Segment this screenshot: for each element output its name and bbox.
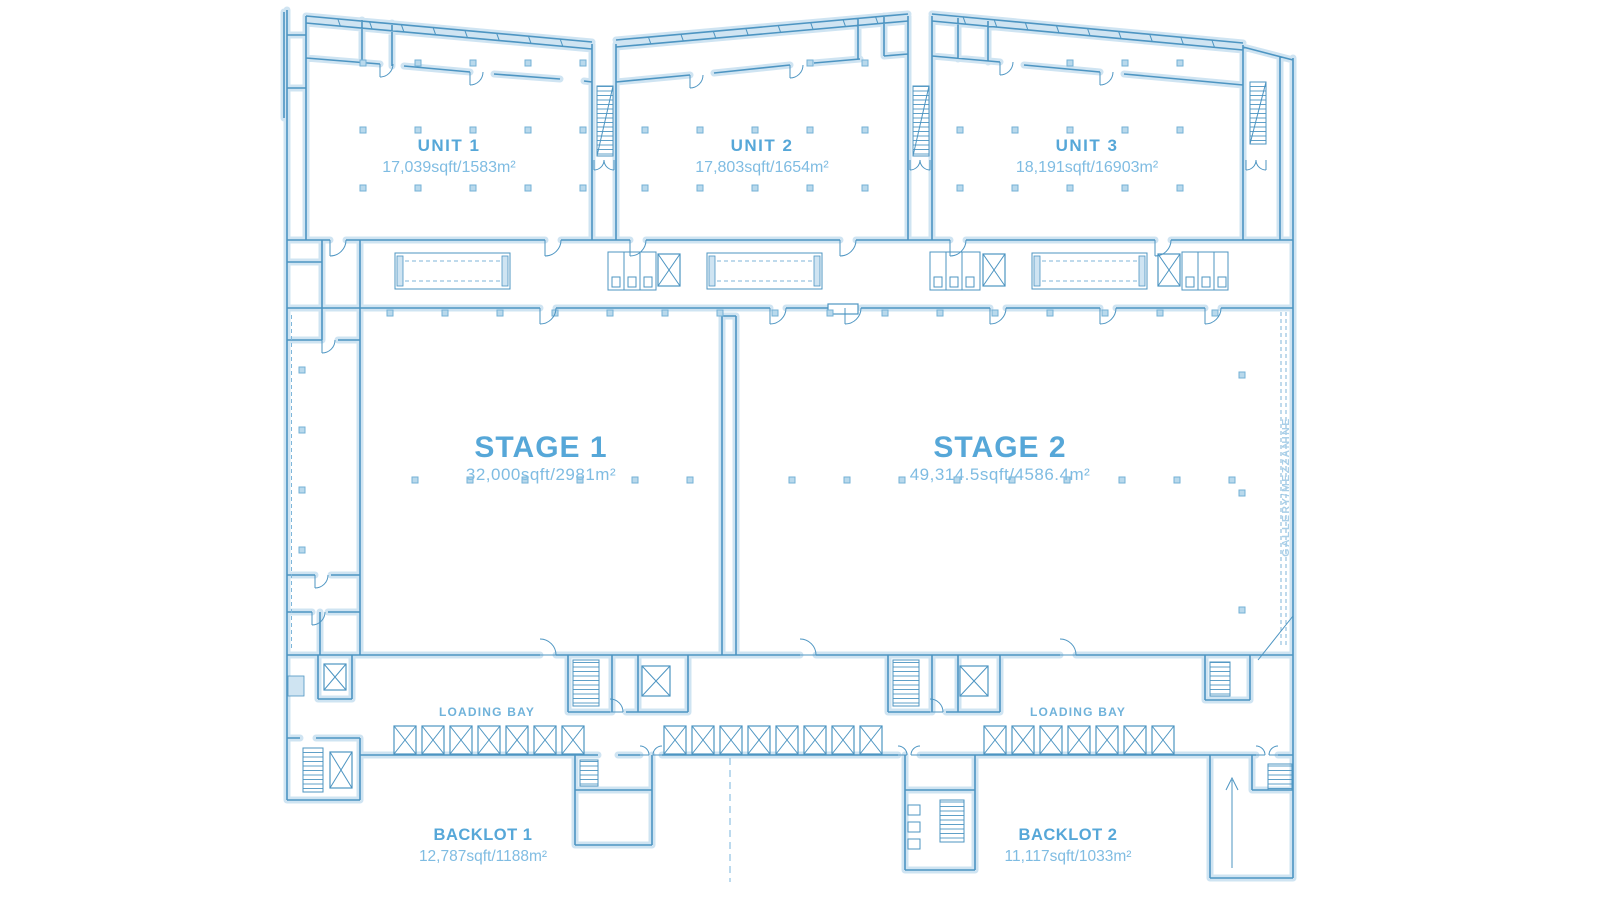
- wc-partition: [1198, 252, 1214, 290]
- column-marker: [360, 185, 366, 191]
- column-marker: [807, 185, 813, 191]
- plant-zone-cap: [1034, 256, 1040, 286]
- plant-zone-cap: [397, 256, 403, 286]
- wc-fixture: [1202, 277, 1210, 287]
- stage1-label: STAGE 1: [474, 431, 607, 464]
- column-marker: [1157, 310, 1163, 316]
- column-marker: [899, 477, 905, 483]
- column-marker: [662, 310, 668, 316]
- wc-cluster: [608, 252, 656, 290]
- backlot1-area: 12,787sqft/1188m²: [419, 848, 547, 865]
- loading-bay-left-label: LOADING BAY: [439, 705, 535, 719]
- column-marker: [862, 127, 868, 133]
- column-marker: [1119, 477, 1125, 483]
- column-marker: [1239, 490, 1245, 496]
- wc-fixture: [908, 822, 920, 832]
- static-details: [288, 304, 1293, 882]
- column-marker: [1177, 185, 1183, 191]
- stage2-label: STAGE 2: [933, 431, 1066, 464]
- column-marker: [632, 477, 638, 483]
- column-marker: [415, 60, 421, 66]
- wc-fixture: [1186, 277, 1194, 287]
- column-marker: [299, 427, 305, 433]
- column-marker: [862, 60, 868, 66]
- column-marker: [1012, 185, 1018, 191]
- wall-pier: [288, 676, 304, 696]
- wc-fixture: [628, 277, 636, 287]
- column-marker: [1122, 60, 1128, 66]
- column-marker: [387, 310, 393, 316]
- wc-partition: [946, 252, 962, 290]
- column-marker: [752, 127, 758, 133]
- column-marker: [807, 127, 813, 133]
- wc-fixture: [908, 805, 920, 815]
- column-marker: [827, 310, 833, 316]
- stage1-area: 32,000sqft/2981m²: [466, 465, 616, 484]
- gallery-mezzanine-label: GALLERY/MEZZANINE: [1280, 417, 1292, 556]
- column-marker: [1067, 60, 1073, 66]
- column-marker: [957, 127, 963, 133]
- column-marker: [580, 127, 586, 133]
- wc-fixture: [908, 839, 920, 849]
- backlot2-area: 11,117sqft/1033m²: [1005, 848, 1132, 865]
- column-marker: [360, 127, 366, 133]
- plant-zone-cap: [709, 256, 715, 286]
- floorplan-canvas: UNIT 1 17,039sqft/1583m² UNIT 2 17,803sq…: [0, 0, 1600, 900]
- wc-cluster: [930, 252, 980, 290]
- wc-fixture: [966, 277, 974, 287]
- wc-fixture: [1218, 277, 1226, 287]
- direction-arrow: [1226, 778, 1238, 868]
- column-marker: [1102, 310, 1108, 316]
- column-marker: [807, 60, 813, 66]
- column-marker: [772, 310, 778, 316]
- column-marker: [642, 185, 648, 191]
- column-marker: [1067, 185, 1073, 191]
- unit1-label: UNIT 1: [418, 136, 481, 155]
- unit1-area: 17,039sqft/1583m²: [382, 159, 516, 176]
- unit2-label: UNIT 2: [731, 136, 794, 155]
- stair: [1210, 662, 1230, 696]
- column-marker: [470, 185, 476, 191]
- column-marker: [580, 60, 586, 66]
- column-marker: [1174, 477, 1180, 483]
- column-marker: [525, 185, 531, 191]
- column-marker: [789, 477, 795, 483]
- column-marker: [1047, 310, 1053, 316]
- plant-zone: [707, 253, 822, 289]
- column-marker: [415, 185, 421, 191]
- column-marker: [1239, 372, 1245, 378]
- column-marker: [882, 310, 888, 316]
- column-marker: [607, 310, 613, 316]
- plant-zone-dashed: [1042, 261, 1137, 281]
- column-marker: [412, 477, 418, 483]
- wc-partition: [624, 252, 640, 290]
- column-marker: [1177, 127, 1183, 133]
- column-marker: [697, 185, 703, 191]
- stair: [303, 748, 323, 792]
- column-marker: [1012, 127, 1018, 133]
- plant-zone-cap: [502, 256, 508, 286]
- column-marker: [752, 185, 758, 191]
- column-marker: [1122, 127, 1128, 133]
- column-marker: [687, 477, 693, 483]
- column-marker: [992, 310, 998, 316]
- wc-fixture: [950, 277, 958, 287]
- column-marker: [642, 127, 648, 133]
- column-marker: [299, 367, 305, 373]
- wc-fixture: [644, 277, 652, 287]
- plant-zone-cap: [1139, 256, 1145, 286]
- column-marker: [937, 310, 943, 316]
- column-marker: [360, 60, 366, 66]
- column-marker: [497, 310, 503, 316]
- column-marker: [1177, 60, 1183, 66]
- column-marker: [1122, 185, 1128, 191]
- column-marker: [1239, 607, 1245, 613]
- loading-bay-right-label: LOADING BAY: [1030, 705, 1126, 719]
- stair: [940, 800, 964, 842]
- stair: [893, 660, 919, 706]
- column-marker: [415, 127, 421, 133]
- wc-fixture: [934, 277, 942, 287]
- plant-zone-dashed: [405, 261, 500, 281]
- plant-zone: [395, 253, 510, 289]
- column-marker: [1229, 477, 1235, 483]
- backlot1-label: BACKLOT 1: [434, 826, 533, 844]
- column-marker: [525, 60, 531, 66]
- column-marker: [844, 477, 850, 483]
- plant-zone: [1032, 253, 1147, 289]
- column-marker: [1212, 310, 1218, 316]
- column-marker: [470, 60, 476, 66]
- column-marker: [580, 185, 586, 191]
- column-marker: [862, 185, 868, 191]
- stair: [573, 660, 599, 706]
- column-marker: [442, 310, 448, 316]
- column-marker: [299, 487, 305, 493]
- column-marker: [525, 127, 531, 133]
- column-marker: [957, 185, 963, 191]
- column-marker: [470, 127, 476, 133]
- unit3-area: 18,191sqft/16903m²: [1016, 159, 1159, 176]
- wc-cluster: [1182, 252, 1228, 290]
- stair: [1268, 764, 1292, 790]
- stage2-area: 49,314.5sqft/4586.4m²: [910, 465, 1091, 484]
- wc-fixture: [612, 277, 620, 287]
- column-marker: [299, 547, 305, 553]
- backlot2-label: BACKLOT 2: [1019, 826, 1118, 844]
- unit2-area: 17,803sqft/1654m²: [695, 159, 829, 176]
- door-swing: [1256, 160, 1266, 170]
- plant-zone-cap: [814, 256, 820, 286]
- column-marker: [697, 127, 703, 133]
- stair: [580, 760, 598, 786]
- door-swing: [1246, 160, 1256, 170]
- column-marker: [1067, 127, 1073, 133]
- unit3-label: UNIT 3: [1056, 136, 1119, 155]
- column-marker: [717, 310, 723, 316]
- plant-zone-dashed: [717, 261, 812, 281]
